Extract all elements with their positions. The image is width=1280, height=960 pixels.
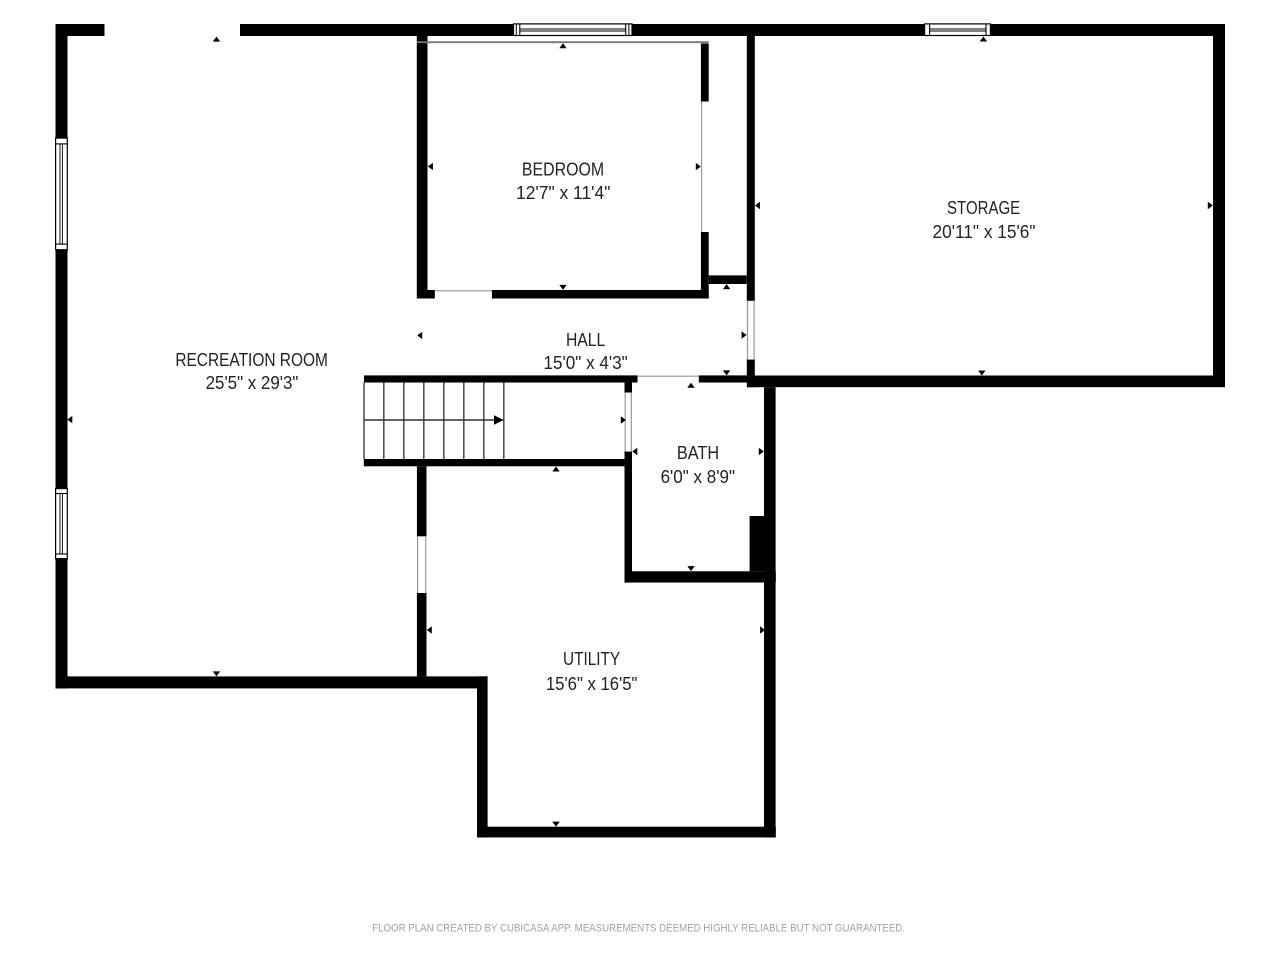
svg-text:BEDROOM: BEDROOM	[522, 159, 604, 179]
svg-text:20'11" x 15'6": 20'11" x 15'6"	[933, 222, 1036, 242]
svg-text:UTILITY: UTILITY	[563, 649, 620, 669]
svg-text:15'6" x 16'5": 15'6" x 16'5"	[546, 674, 638, 694]
svg-text:RECREATION ROOM: RECREATION ROOM	[175, 350, 328, 370]
svg-text:FLOOR PLAN CREATED BY CUBICASA: FLOOR PLAN CREATED BY CUBICASA APP. MEAS…	[372, 923, 905, 935]
svg-text:STORAGE: STORAGE	[947, 198, 1020, 218]
svg-text:BATH: BATH	[677, 443, 719, 463]
svg-text:6'0" x 8'9": 6'0" x 8'9"	[661, 467, 735, 487]
svg-text:HALL: HALL	[566, 330, 605, 350]
svg-text:25'5" x 29'3": 25'5" x 29'3"	[206, 373, 299, 393]
svg-text:15'0" x 4'3": 15'0" x 4'3"	[543, 353, 627, 373]
svg-text:12'7" x 11'4": 12'7" x 11'4"	[516, 183, 610, 203]
